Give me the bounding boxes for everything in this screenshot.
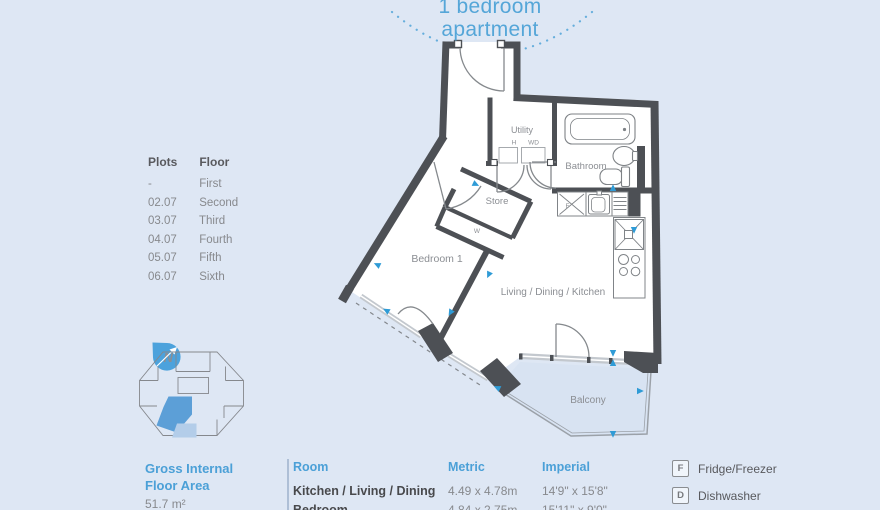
wall-kitchen-stub [629, 194, 641, 217]
floor-header: Floor [199, 155, 229, 169]
room-imperial: 15'11" x 9'0" [542, 503, 662, 510]
metric-column-header: Metric [448, 460, 542, 474]
plots-row: 04.07 Fourth [148, 231, 238, 250]
room-label-bathroom: Bathroom [565, 161, 606, 172]
room-name: Kitchen / Living / Dining [293, 484, 448, 499]
apartment-title-line1: 1 bedroom [370, 0, 610, 19]
utility-h-label: H [512, 140, 517, 147]
divider [287, 459, 289, 510]
plots-row: 02.07 Second [148, 194, 238, 213]
plots-row: - First [148, 175, 238, 194]
gia-label-line1: Gross Internal [145, 460, 233, 477]
rooms-table-row: Kitchen / Living / Dining 4.49 x 4.78m 1… [293, 484, 662, 499]
room-label-store: Store [486, 196, 509, 207]
fridge-letter: F [566, 203, 570, 210]
plot-floor: Third [199, 215, 225, 227]
plot-floor: Fifth [199, 252, 221, 264]
wardrobe-label: W [474, 228, 481, 235]
plot-number: 05.07 [148, 249, 196, 268]
room-name: Bedroom [293, 503, 448, 510]
legend-item: F Fridge/Freezer [672, 460, 777, 477]
apartment-title-line2: apartment [370, 19, 610, 42]
basin-icon [613, 147, 635, 166]
plots-row: 06.07 Sixth [148, 268, 238, 287]
rooms-table-row: Bedroom 4.84 x 2.75m 15'11" x 9'0" [293, 503, 662, 510]
plot-number: 02.07 [148, 194, 196, 213]
plot-floor: Second [199, 197, 238, 209]
plot-number: 03.07 [148, 212, 196, 231]
plots-table: Plots Floor - First 02.07 Second 03.07 T… [148, 155, 238, 286]
plots-row: 03.07 Third [148, 212, 238, 231]
room-label-bedroom: Bedroom 1 [411, 253, 463, 265]
rooms-table: Room Metric Imperial Kitchen / Living / … [293, 460, 662, 510]
gia-label-line2: Floor Area [145, 477, 233, 494]
plot-floor: Fourth [199, 234, 232, 246]
legend: F Fridge/Freezer D Dishwasher [672, 460, 777, 510]
apartment-title: 1 bedroom apartment [370, 0, 610, 41]
utility-wd-label: WD [528, 140, 539, 147]
plot-number: - [148, 175, 196, 194]
plots-row: 05.07 Fifth [148, 249, 238, 268]
plot-floor: First [199, 178, 221, 190]
dishwasher-legend-label: Dishwasher [698, 489, 761, 503]
fridge-legend-label: Fridge/Freezer [698, 462, 777, 476]
plots-header: Plots [148, 155, 196, 169]
room-label-balcony: Balcony [570, 395, 606, 406]
imperial-column-header: Imperial [542, 460, 662, 474]
gia-value: 51.7 m² [145, 497, 233, 510]
floor-plan-canvas: Utility H WD Bathroom Store W Bedroom 1 … [0, 0, 880, 510]
dishwasher-legend-key: D [672, 487, 689, 504]
room-column-header: Room [293, 460, 448, 474]
plot-number: 06.07 [148, 268, 196, 287]
plot-floor: Sixth [199, 271, 225, 283]
room-label-living: Living / Dining / Kitchen [501, 287, 606, 298]
room-imperial: 14'9" x 15'8" [542, 484, 662, 499]
room-metric: 4.49 x 4.78m [448, 484, 542, 499]
key-plan [140, 352, 244, 438]
legend-item: D Dishwasher [672, 487, 777, 504]
fridge-legend-key: F [672, 460, 689, 477]
room-metric: 4.84 x 2.75m [448, 503, 542, 510]
room-label-utility: Utility [511, 125, 533, 135]
plot-number: 04.07 [148, 231, 196, 250]
gross-internal-area: Gross Internal Floor Area 51.7 m² [145, 460, 233, 510]
